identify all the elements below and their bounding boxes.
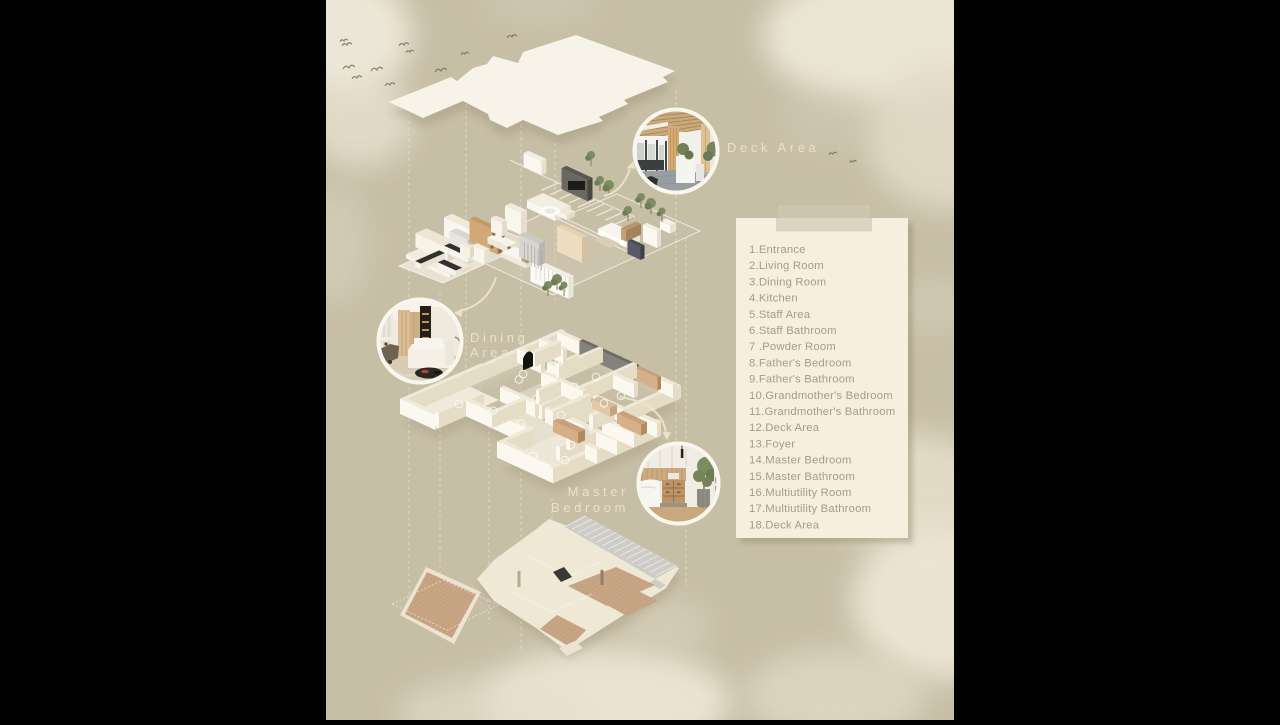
svg-text:Deck Area: Deck Area xyxy=(727,140,819,155)
svg-text:16.Multiutility Room: 16.Multiutility Room xyxy=(749,487,852,499)
svg-text:5.Staff Area: 5.Staff Area xyxy=(749,309,811,321)
svg-text:6.Staff Bathroom: 6.Staff Bathroom xyxy=(749,325,837,337)
svg-text:18.Deck Area: 18.Deck Area xyxy=(749,519,820,531)
svg-text:15.Master Bathroom: 15.Master Bathroom xyxy=(749,471,855,483)
svg-text:17.Multiutility Bathroom: 17.Multiutility Bathroom xyxy=(749,503,871,515)
svg-text:7 .Powder Room: 7 .Powder Room xyxy=(749,341,836,353)
svg-text:Dining: Dining xyxy=(470,330,528,345)
svg-text:12.Deck Area: 12.Deck Area xyxy=(749,422,820,434)
svg-text:14.Master Bedroom: 14.Master Bedroom xyxy=(749,455,852,467)
svg-text:10.Grandmother's Bedroom: 10.Grandmother's Bedroom xyxy=(749,390,893,402)
svg-text:2.Living Room: 2.Living Room xyxy=(749,260,824,272)
svg-text:Master: Master xyxy=(568,484,629,499)
svg-text:3.Dining Room: 3.Dining Room xyxy=(749,276,826,288)
svg-text:9.Father's Bathroom: 9.Father's Bathroom xyxy=(749,374,855,386)
svg-text:11.Grandmother's Bathroom: 11.Grandmother's Bathroom xyxy=(749,406,895,418)
svg-text:Bedroom: Bedroom xyxy=(551,500,629,515)
svg-text:Area: Area xyxy=(470,345,512,360)
svg-text:4.Kitchen: 4.Kitchen xyxy=(749,293,798,305)
svg-text:13.Foyer: 13.Foyer xyxy=(749,438,795,450)
svg-text:1.Entrance: 1.Entrance xyxy=(749,244,806,256)
svg-text:8.Father's Bedroom: 8.Father's Bedroom xyxy=(749,357,851,369)
